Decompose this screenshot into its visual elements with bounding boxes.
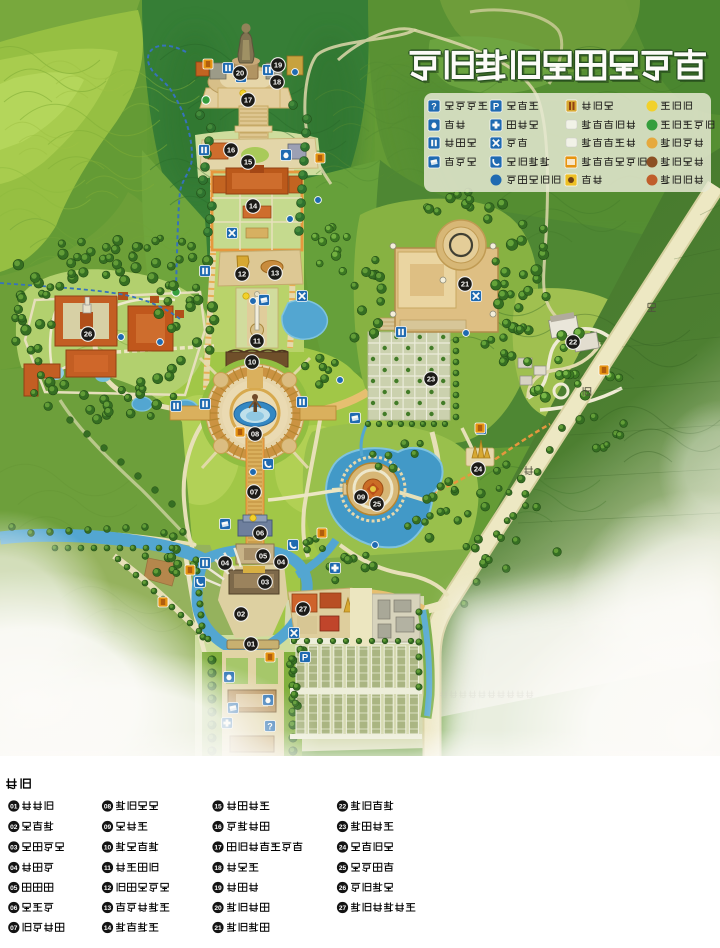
- svg-text:08: 08: [104, 803, 112, 810]
- svg-text:16: 16: [214, 824, 222, 831]
- svg-text:26: 26: [339, 885, 347, 892]
- svg-text:14: 14: [104, 925, 112, 932]
- svg-text:23: 23: [339, 824, 347, 831]
- svg-text:22: 22: [339, 803, 347, 810]
- svg-text:21: 21: [214, 925, 222, 932]
- svg-text:06: 06: [10, 905, 18, 912]
- svg-text:03: 03: [10, 844, 18, 851]
- svg-text:11: 11: [104, 865, 111, 872]
- svg-text:13: 13: [104, 905, 112, 912]
- svg-text:25: 25: [339, 865, 347, 872]
- svg-text:02: 02: [10, 824, 18, 831]
- svg-text:15: 15: [214, 803, 222, 810]
- svg-text:12: 12: [104, 885, 112, 892]
- svg-text:20: 20: [214, 905, 222, 912]
- svg-text:19: 19: [214, 885, 222, 892]
- svg-text:10: 10: [104, 844, 112, 851]
- svg-text:17: 17: [214, 844, 222, 851]
- svg-text:07: 07: [10, 925, 18, 932]
- svg-text:05: 05: [10, 885, 18, 892]
- svg-text:04: 04: [10, 865, 18, 872]
- svg-text:24: 24: [339, 844, 347, 851]
- svg-text:27: 27: [339, 905, 347, 912]
- svg-text:18: 18: [214, 865, 222, 872]
- svg-text:01: 01: [10, 803, 18, 810]
- svg-text:09: 09: [104, 824, 112, 831]
